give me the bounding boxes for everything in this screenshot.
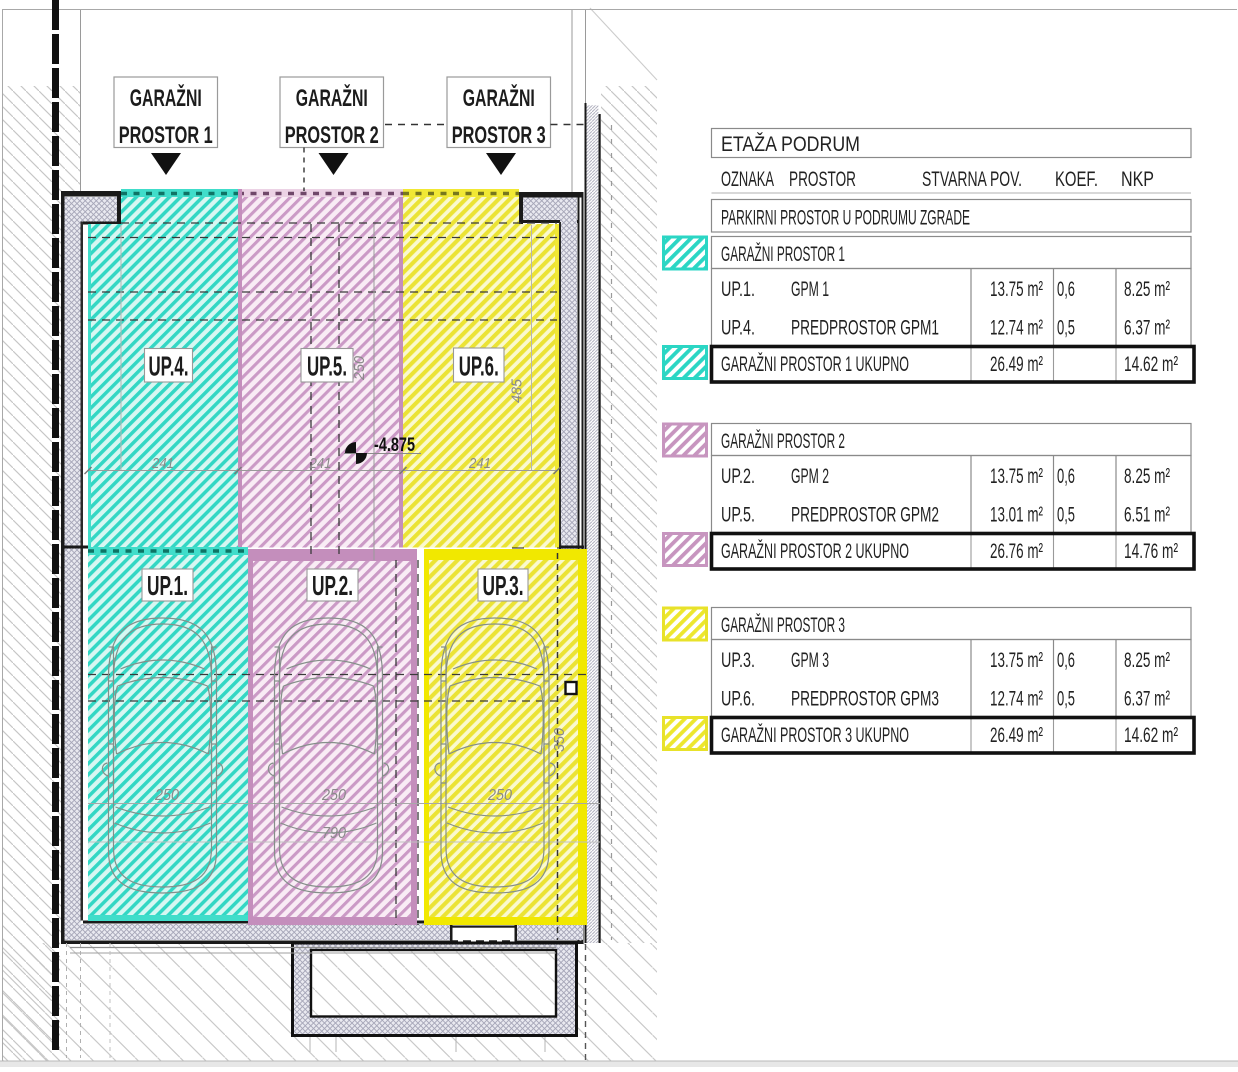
svg-text:UP.1.: UP.1. bbox=[147, 570, 188, 601]
svg-text:GARAŽNI PROSTOR 2: GARAŽNI PROSTOR 2 bbox=[721, 430, 845, 453]
svg-text:241: 241 bbox=[309, 456, 332, 472]
svg-text:UP.4.: UP.4. bbox=[721, 317, 755, 340]
svg-text:0,6: 0,6 bbox=[1057, 649, 1075, 672]
svg-text:UP.5.: UP.5. bbox=[307, 351, 347, 382]
svg-text:ETAŽA PODRUM: ETAŽA PODRUM bbox=[721, 133, 860, 156]
svg-text:UP.1.: UP.1. bbox=[721, 278, 755, 301]
svg-text:UP.3.: UP.3. bbox=[483, 570, 524, 601]
svg-text:PROSTOR 1: PROSTOR 1 bbox=[119, 122, 213, 149]
svg-text:14.76 m²: 14.76 m² bbox=[1124, 540, 1178, 563]
svg-text:STVARNA POV.: STVARNA POV. bbox=[922, 168, 1022, 191]
svg-text:12.74 m²: 12.74 m² bbox=[990, 688, 1043, 711]
svg-text:0,6: 0,6 bbox=[1057, 465, 1075, 488]
svg-text:0,5: 0,5 bbox=[1057, 317, 1075, 340]
svg-text:250: 250 bbox=[487, 787, 512, 804]
svg-text:12.74 m²: 12.74 m² bbox=[990, 317, 1043, 340]
svg-text:OZNAKA: OZNAKA bbox=[721, 168, 774, 191]
svg-text:0,5: 0,5 bbox=[1057, 688, 1075, 711]
svg-text:8.25 m²: 8.25 m² bbox=[1124, 278, 1170, 301]
svg-text:UP.6.: UP.6. bbox=[721, 688, 755, 711]
svg-text:13.75 m²: 13.75 m² bbox=[990, 649, 1043, 672]
svg-text:UP.2.: UP.2. bbox=[312, 570, 353, 601]
svg-text:NKP: NKP bbox=[1121, 168, 1154, 191]
svg-text:14.62 m²: 14.62 m² bbox=[1124, 353, 1178, 376]
svg-text:GARAŽNI PROSTOR 3 UKUPNO: GARAŽNI PROSTOR 3 UKUPNO bbox=[721, 724, 909, 747]
svg-text:GPM 1: GPM 1 bbox=[791, 278, 829, 301]
svg-text:-4.875: -4.875 bbox=[374, 435, 415, 456]
svg-text:0,6: 0,6 bbox=[1057, 278, 1075, 301]
svg-text:PARKIRNI PROSTOR U PODRUMU ZGR: PARKIRNI PROSTOR U PODRUMU ZGRADE bbox=[721, 207, 970, 230]
svg-text:6.37 m²: 6.37 m² bbox=[1124, 317, 1170, 340]
svg-text:8.25 m²: 8.25 m² bbox=[1124, 465, 1170, 488]
svg-text:PREDPROSTOR GPM2: PREDPROSTOR GPM2 bbox=[791, 504, 939, 527]
svg-text:13.75 m²: 13.75 m² bbox=[990, 278, 1043, 301]
svg-text:UP.4.: UP.4. bbox=[149, 351, 189, 382]
svg-text:UP.5.: UP.5. bbox=[721, 504, 755, 527]
svg-text:250: 250 bbox=[154, 787, 179, 804]
svg-text:6.51 m²: 6.51 m² bbox=[1124, 504, 1170, 527]
svg-text:GPM 3: GPM 3 bbox=[791, 649, 829, 672]
svg-text:GARAŽNI: GARAŽNI bbox=[463, 84, 535, 112]
svg-text:241: 241 bbox=[468, 456, 491, 472]
svg-text:13.75 m²: 13.75 m² bbox=[990, 465, 1043, 488]
svg-text:14.62 m²: 14.62 m² bbox=[1124, 724, 1178, 747]
svg-text:13.01 m²: 13.01 m² bbox=[990, 504, 1043, 527]
svg-text:PROSTOR 3: PROSTOR 3 bbox=[452, 122, 546, 149]
svg-text:UP.3.: UP.3. bbox=[721, 649, 755, 672]
svg-text:350: 350 bbox=[551, 727, 568, 752]
svg-text:PROSTOR 2: PROSTOR 2 bbox=[285, 122, 379, 149]
svg-text:KOEF.: KOEF. bbox=[1055, 168, 1098, 191]
svg-text:GARAŽNI: GARAŽNI bbox=[130, 84, 202, 112]
svg-text:8.25 m²: 8.25 m² bbox=[1124, 649, 1170, 672]
svg-text:PREDPROSTOR GPM1: PREDPROSTOR GPM1 bbox=[791, 317, 939, 340]
svg-text:PREDPROSTOR GPM3: PREDPROSTOR GPM3 bbox=[791, 688, 939, 711]
svg-text:PROSTOR: PROSTOR bbox=[789, 168, 856, 191]
svg-text:GARAŽNI PROSTOR 3: GARAŽNI PROSTOR 3 bbox=[721, 614, 845, 637]
svg-text:485: 485 bbox=[509, 378, 526, 403]
svg-text:241: 241 bbox=[151, 456, 174, 472]
svg-text:GPM 2: GPM 2 bbox=[791, 465, 829, 488]
svg-text:0,5: 0,5 bbox=[1057, 504, 1075, 527]
svg-text:UP.6.: UP.6. bbox=[459, 351, 499, 382]
svg-text:UP.2.: UP.2. bbox=[721, 465, 755, 488]
svg-text:6.37 m²: 6.37 m² bbox=[1124, 688, 1170, 711]
svg-text:GARAŽNI PROSTOR 1 UKUPNO: GARAŽNI PROSTOR 1 UKUPNO bbox=[721, 353, 909, 376]
svg-text:26.49 m²: 26.49 m² bbox=[990, 724, 1043, 747]
svg-text:GARAŽNI: GARAŽNI bbox=[296, 84, 368, 112]
svg-text:250: 250 bbox=[321, 787, 346, 804]
svg-text:GARAŽNI PROSTOR 2 UKUPNO: GARAŽNI PROSTOR 2 UKUPNO bbox=[721, 540, 909, 563]
svg-text:GARAŽNI PROSTOR 1: GARAŽNI PROSTOR 1 bbox=[721, 243, 845, 266]
svg-text:26.49 m²: 26.49 m² bbox=[990, 353, 1043, 376]
svg-text:26.76 m²: 26.76 m² bbox=[990, 540, 1043, 563]
